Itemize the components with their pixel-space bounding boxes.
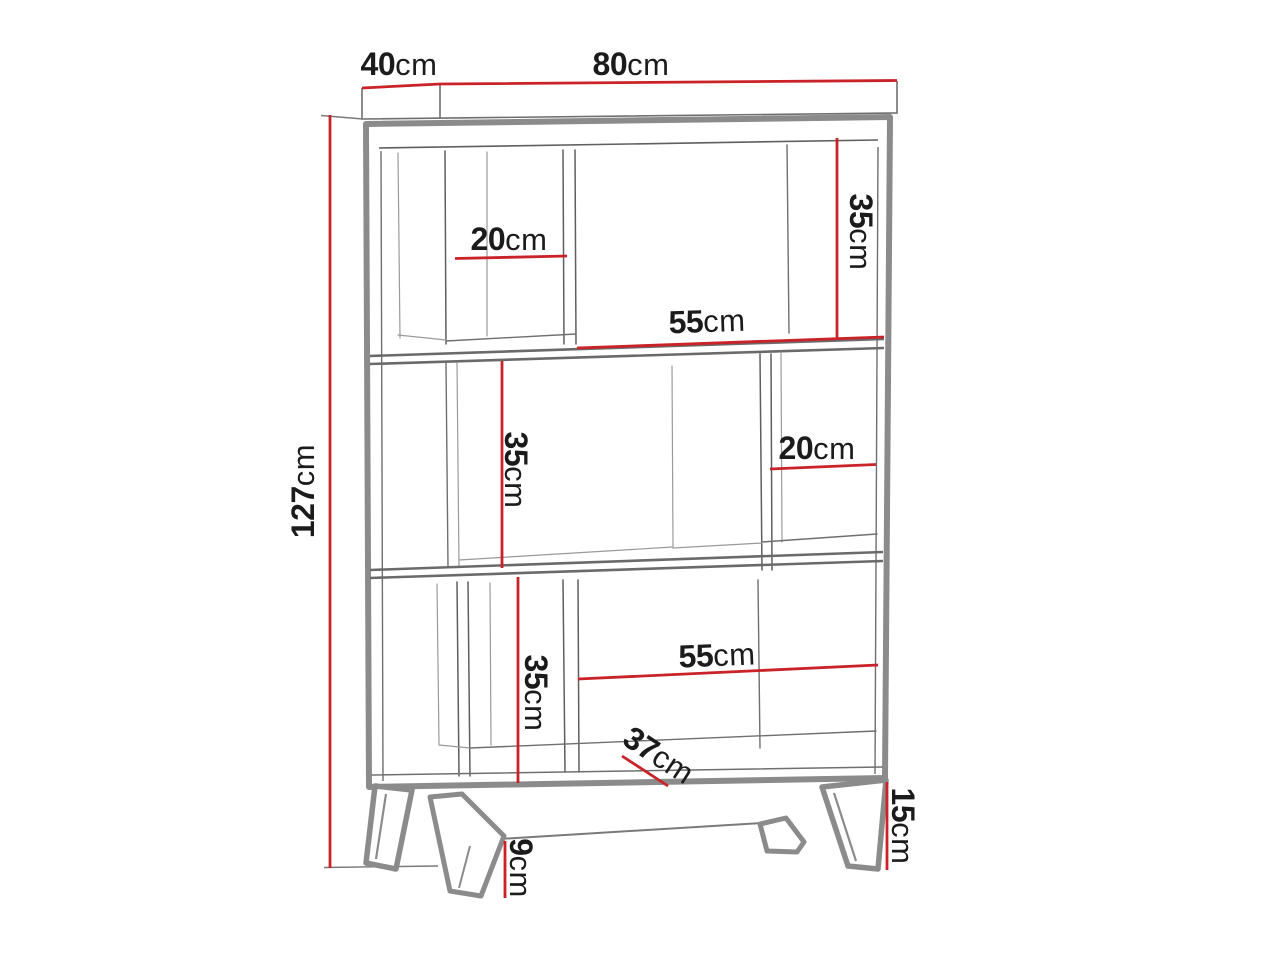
dim-label-width: 80cm	[593, 48, 670, 80]
dim-value: 127	[285, 486, 321, 538]
dim-value: 15	[885, 788, 921, 823]
dim-label-middle-cubby-width: 20cm	[779, 432, 856, 464]
dim-value: 35	[498, 432, 534, 467]
top-dimension-box	[362, 81, 897, 120]
dim-label-height: 127cm	[287, 444, 319, 538]
dim-unit: cm	[703, 303, 747, 339]
dim-unit: cm	[813, 431, 855, 466]
bookcase-line-drawing	[0, 0, 1280, 960]
dim-unit: cm	[503, 855, 538, 897]
dim-value: 20	[779, 430, 814, 466]
dim-label-leg-clearance: 9cm	[505, 838, 537, 898]
rear-left-leg	[430, 794, 504, 896]
dim-label-leg-height: 15cm	[887, 788, 919, 865]
dim-label-top-cubby-width: 20cm	[471, 223, 548, 255]
dim-label-depth: 40cm	[361, 48, 438, 80]
dim-unit: cm	[505, 222, 547, 257]
dim-label-bottom-row-height: 35cm	[520, 655, 552, 732]
dim-value: 55	[678, 637, 714, 674]
legs	[366, 780, 886, 896]
dim-value: 35	[518, 655, 554, 690]
dim-unit: cm	[395, 47, 437, 82]
dim-label-middle-row-height: 35cm	[500, 432, 532, 509]
dim-label-top-row-height: 35cm	[845, 194, 877, 271]
dim-unit: cm	[885, 822, 920, 864]
dim-value: 20	[471, 221, 506, 257]
dim-unit: cm	[518, 689, 553, 731]
diagram-canvas: 40cm 80cm 127cm 20cm 35cm 55cm 35cm 20cm…	[0, 0, 1280, 960]
dim-value: 40	[361, 46, 396, 82]
dim-value: 35	[843, 194, 879, 229]
dim-unit: cm	[286, 444, 321, 486]
rear-right-leg	[760, 818, 804, 852]
dim-unit: cm	[627, 47, 669, 82]
dim-value: 9	[503, 838, 539, 855]
dim-value: 55	[668, 303, 704, 340]
dim-label-top-open-width: 55cm	[668, 304, 746, 339]
dim-label-bottom-open-width: 55cm	[678, 637, 756, 672]
dim-unit: cm	[498, 466, 533, 508]
dim-unit: cm	[712, 636, 756, 673]
dim-unit: cm	[843, 228, 878, 270]
dim-value: 80	[593, 46, 628, 82]
front-left-leg	[366, 786, 412, 869]
